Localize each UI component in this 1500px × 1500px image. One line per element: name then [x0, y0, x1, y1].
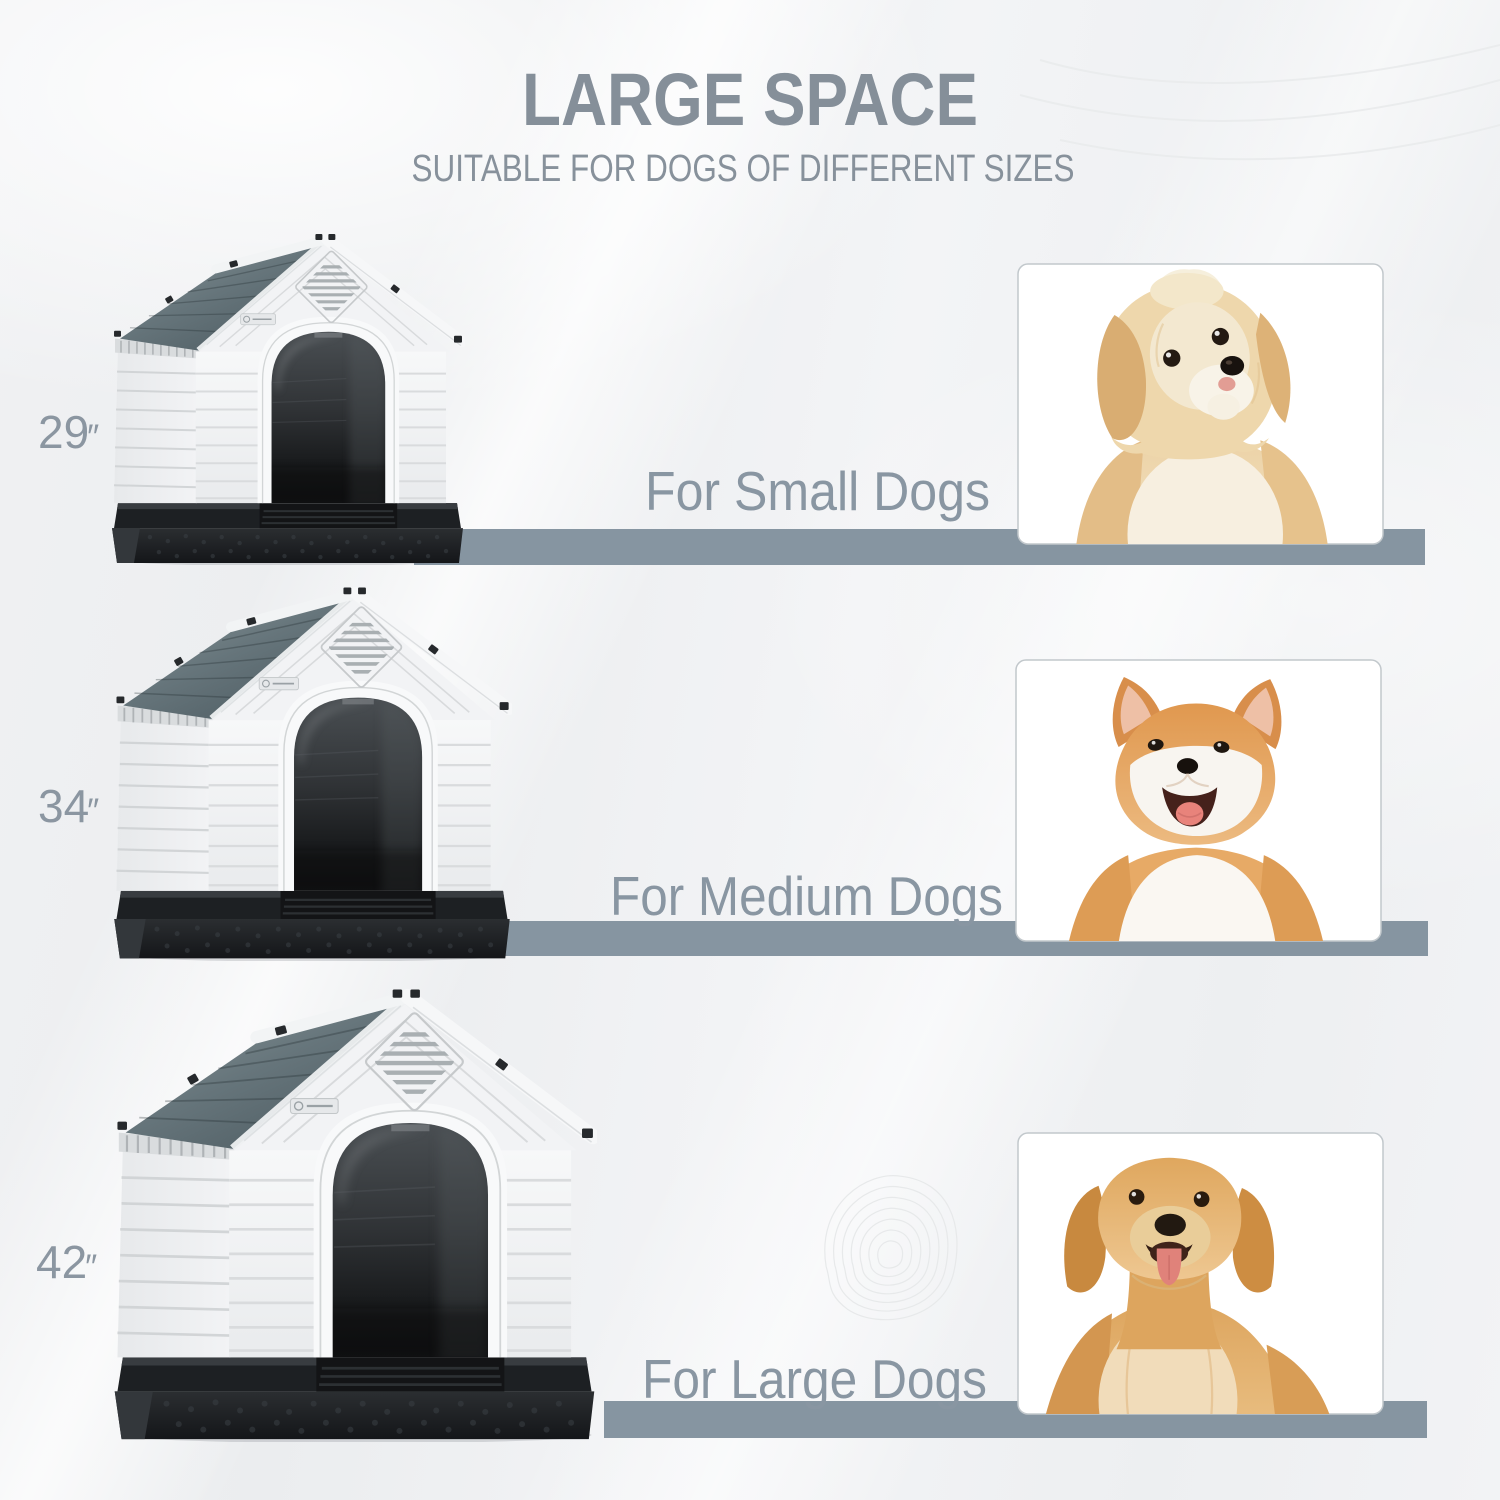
svg-text:SUITABLE FOR DOGS OF DIFFERENT: SUITABLE FOR DOGS OF DIFFERENT SIZES	[412, 148, 1075, 190]
svg-text:29″: 29″	[38, 406, 99, 458]
svg-text:For Small Dogs: For Small Dogs	[645, 460, 990, 522]
svg-text:For Medium Dogs: For Medium Dogs	[610, 865, 1003, 927]
svg-text:42″: 42″	[36, 1236, 97, 1288]
svg-text:LARGE SPACE: LARGE SPACE	[522, 58, 978, 141]
svg-text:34″: 34″	[38, 780, 99, 832]
svg-text:For Large Dogs: For Large Dogs	[642, 1348, 987, 1410]
